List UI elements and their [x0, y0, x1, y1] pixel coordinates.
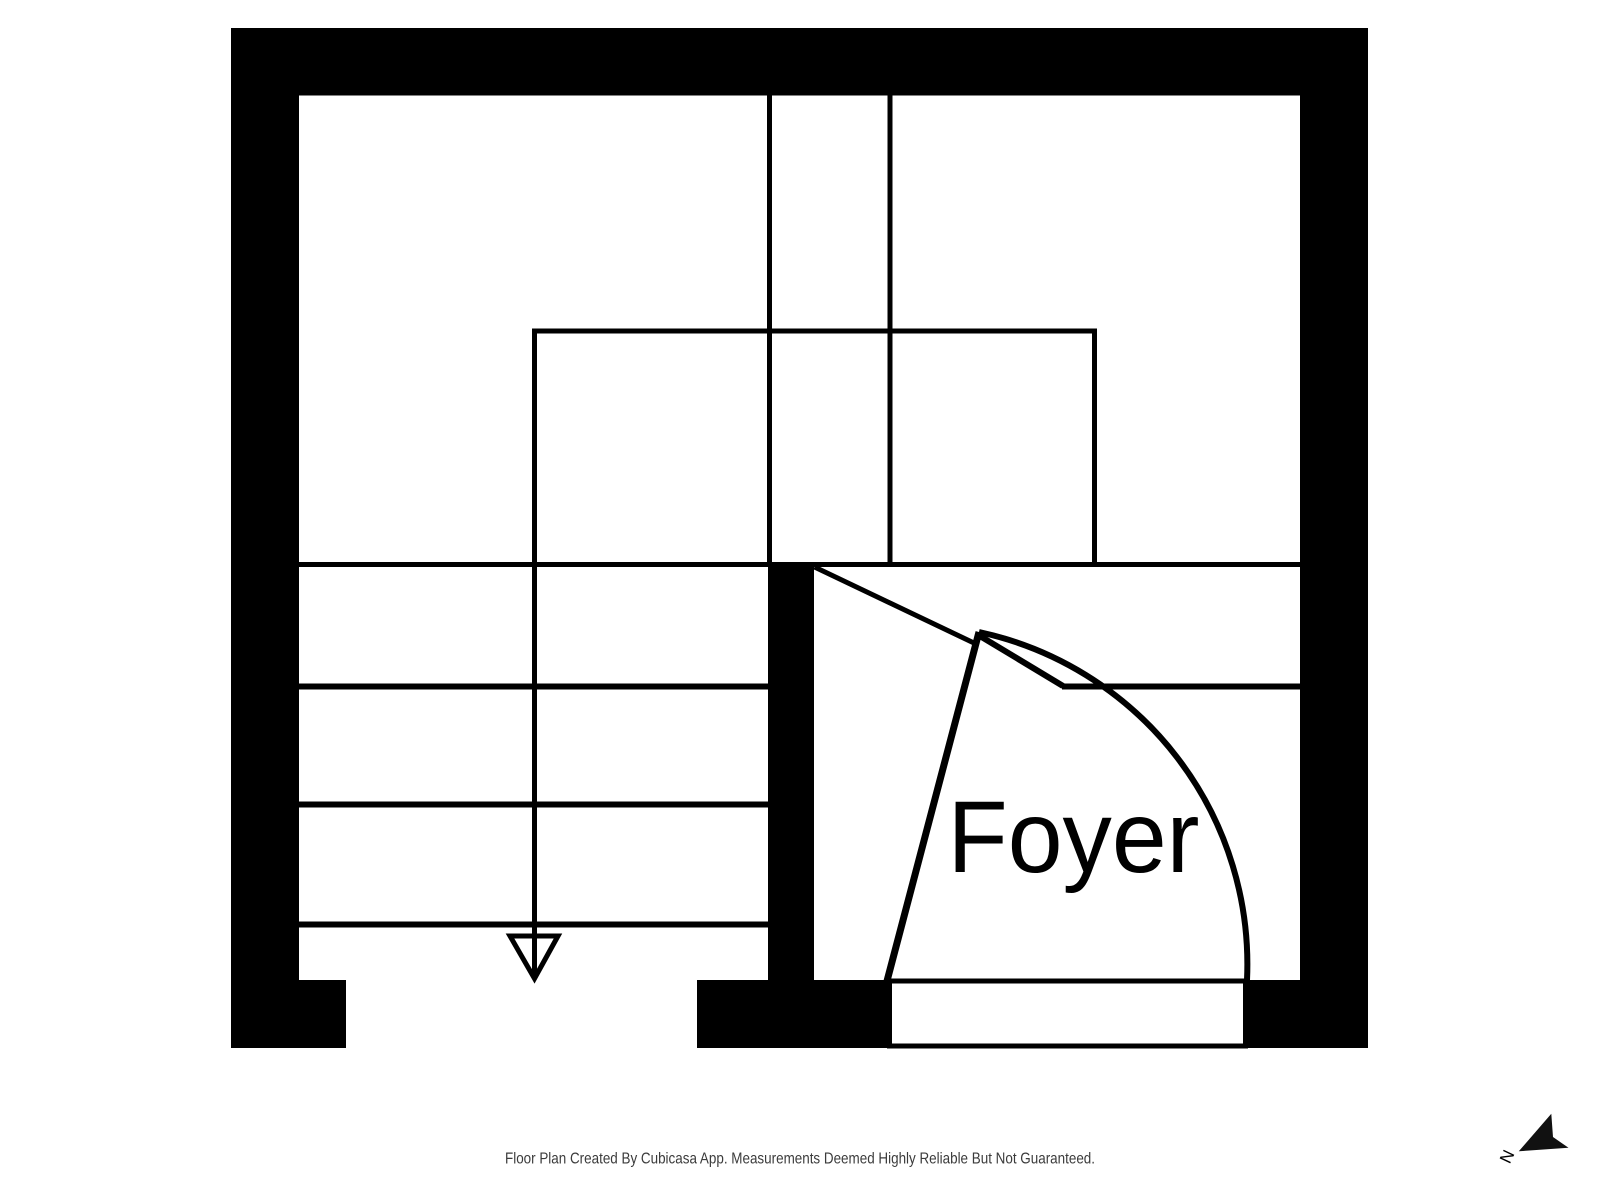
svg-text:Foyer: Foyer: [948, 780, 1200, 894]
svg-text:Floor Plan Created By Cubicasa: Floor Plan Created By Cubicasa App. Meas…: [505, 1151, 1095, 1168]
